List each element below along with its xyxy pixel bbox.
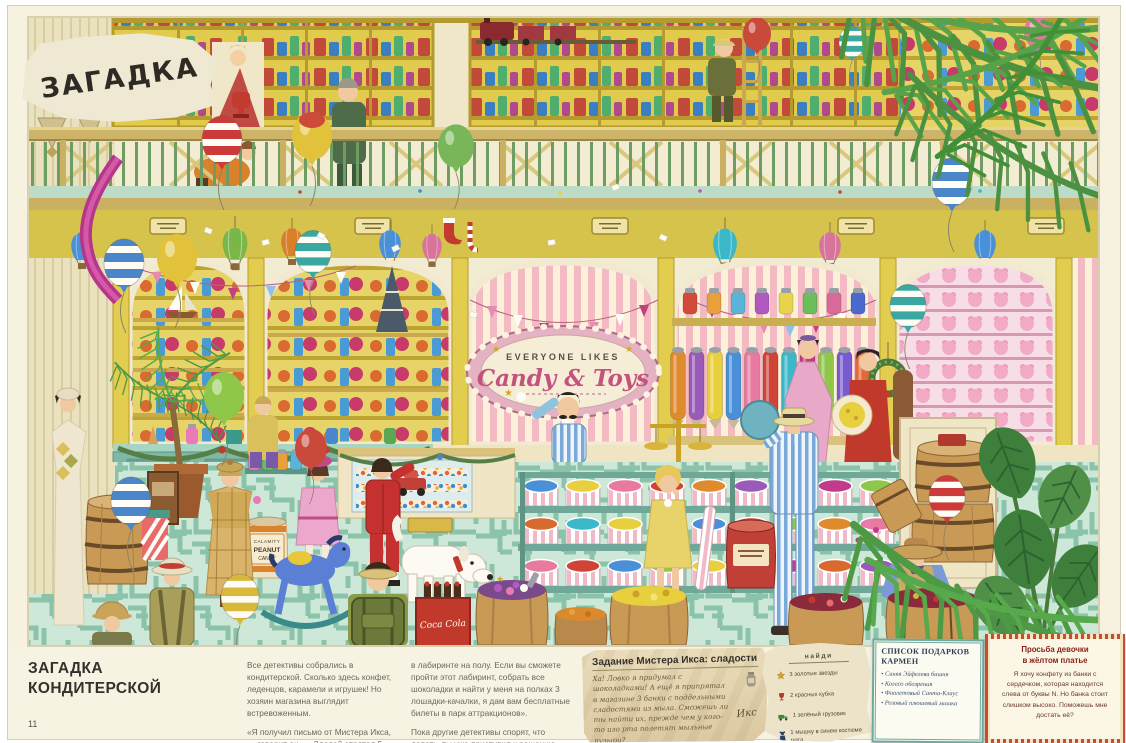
page-title-line2: КОНДИТЕРСКОЙ — [28, 679, 238, 699]
jar-icon — [745, 672, 757, 692]
candy-tub-yellow — [610, 586, 688, 645]
intro-paragraph-2: «Я получил письмо от Мистера Икса, — гов… — [247, 726, 399, 743]
find-item-label: 1 зелёный грузовик — [793, 711, 846, 720]
red-goblet-icon — [777, 688, 787, 706]
text-band: ЗАГАДКА КОНДИТЕРСКОЙ 11 Все детективы со… — [8, 647, 1118, 737]
intro-paragraph-3: в лабиринте на полу. Если вы сможете про… — [411, 659, 574, 719]
book-spread: EVERYONE LIKES Candy & Toys ★ ★ — [0, 0, 1126, 743]
find-list-note: найди 3 золотые звезды 2 красных кубка 1… — [761, 641, 872, 743]
find-item-label: 2 красных кубка — [790, 691, 834, 700]
girl-note-title-line2: в жёлтом платье — [1022, 656, 1087, 665]
yellow-dress-girl-note-inner: Просьба девочки в жёлтом платье Я хочу к… — [990, 639, 1120, 739]
sign-top-text: EVERYONE LIKES — [506, 352, 620, 362]
intro-column-2: в лабиринте на полу. Если вы сможете про… — [411, 659, 574, 743]
candy-tub-red — [789, 593, 864, 645]
find-item: 3 золотые звезды — [776, 664, 863, 685]
page-title: ЗАГАДКА КОНДИТЕРСКОЙ — [28, 659, 238, 699]
girl-note-title-line1: Просьба девочки — [1021, 645, 1088, 654]
mister-x-title: Задание Мистера Икса: сладости — [592, 653, 758, 671]
intro-paragraph-4: Пока другие детективы спорят, что делать… — [411, 726, 574, 743]
mister-x-note: Задание Мистера Икса: сладости Ха! Ловко… — [582, 646, 770, 743]
candy-tub-orange — [555, 607, 607, 645]
mister-x-body: Ха! Ловко я придумал с шоколадками! А ещ… — [592, 671, 732, 743]
yellow-dress-girl-note: Просьба девочки в жёлтом платье Я хочу к… — [985, 634, 1125, 743]
sign-main-text: Candy & Toys — [477, 365, 649, 392]
carmen-list-title: СПИСОК ПОДАРКОВ КАРМЕН — [881, 647, 975, 667]
mister-x-signature: Икс — [736, 707, 757, 720]
peanut-tin-line2: PEANUT — [254, 547, 281, 554]
intro-paragraph-1: Все детективы собрались в кондитерской. … — [247, 659, 399, 719]
intro-column-1: Все детективы собрались в кондитерской. … — [247, 659, 399, 743]
svg-text:★: ★ — [496, 574, 504, 584]
gift-item: Синяя Эйфелева башня — [881, 670, 975, 680]
page-number: 11 — [28, 719, 37, 729]
svg-text:★: ★ — [492, 344, 500, 354]
find-item-label: 1 мышку в синем костюме мага — [790, 728, 864, 743]
red-trophy — [232, 92, 250, 118]
explorer-pith-helmet — [150, 558, 194, 646]
page-title-line1: ЗАГАДКА — [28, 659, 238, 679]
corner-riddle-label: ЗАГАДКА — [21, 31, 220, 126]
mouse-figure-icon — [778, 729, 787, 743]
find-item-label: 3 золотые звезды — [789, 671, 838, 680]
gold-star-icon — [776, 667, 786, 685]
carmen-gift-list-note: СПИСОК ПОДАРКОВ КАРМЕН Синяя Эйфелева ба… — [872, 639, 985, 743]
find-item: 1 мышку в синем костюме мага — [778, 726, 865, 743]
svg-text:★: ★ — [625, 344, 633, 354]
find-item: 2 красных кубка — [777, 685, 864, 706]
peanut-tin-line1: CALAMITY — [254, 539, 281, 544]
gift-item: Розовый плюшевый мишка — [881, 699, 975, 709]
corner-riddle-text: ЗАГАДКА — [39, 52, 201, 105]
sweet-barrel-red — [727, 520, 776, 588]
green-truck-icon — [778, 708, 790, 726]
find-list-title: найди — [789, 652, 849, 664]
find-item: 1 зелёный грузовик — [778, 705, 865, 726]
svg-text:★: ★ — [504, 388, 513, 399]
girl-note-body: Я хочу конфету из банки с сердечком, кот… — [998, 670, 1112, 721]
